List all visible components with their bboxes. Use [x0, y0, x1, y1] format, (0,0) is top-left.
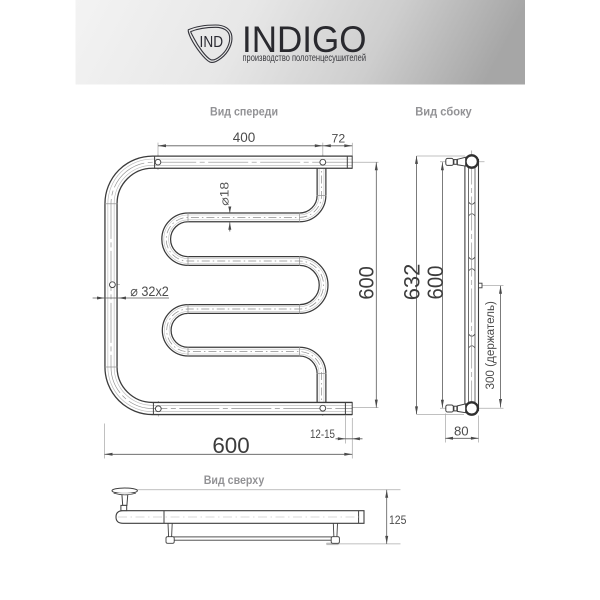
svg-text:производство полотенцесушителе: производство полотенцесушителей	[243, 53, 367, 64]
svg-text:300 (держатель): 300 (держатель)	[483, 301, 497, 390]
svg-text:IND: IND	[200, 34, 224, 51]
svg-text:600: 600	[212, 433, 249, 458]
svg-text:632: 632	[399, 264, 424, 301]
svg-text:72: 72	[332, 131, 346, 145]
svg-text:Вид сбоку: Вид сбоку	[415, 104, 472, 118]
svg-text:⌀ 32х2: ⌀ 32х2	[130, 283, 169, 299]
svg-text:400: 400	[233, 130, 256, 145]
svg-text:⌀18: ⌀18	[218, 181, 232, 206]
svg-text:600: 600	[423, 266, 448, 300]
svg-text:12-15: 12-15	[310, 427, 335, 441]
svg-text:80: 80	[454, 424, 469, 439]
svg-text:Вид спереди: Вид спереди	[210, 104, 278, 118]
svg-text:Вид сверху: Вид сверху	[204, 473, 265, 487]
svg-text:600: 600	[354, 266, 378, 300]
svg-text:125: 125	[389, 515, 406, 527]
